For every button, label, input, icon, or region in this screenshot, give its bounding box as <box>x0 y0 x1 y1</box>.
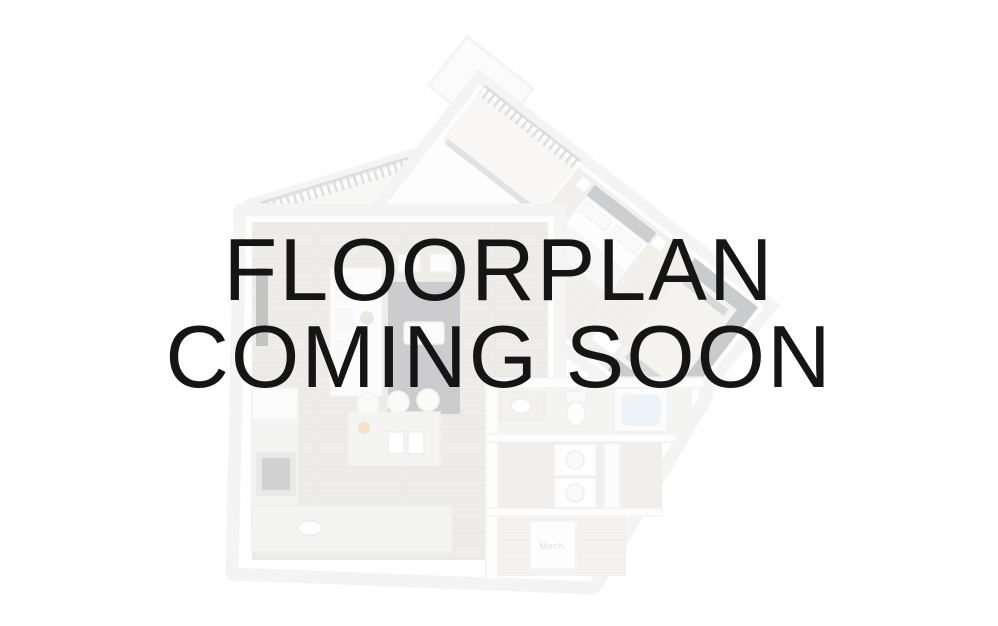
armchair <box>398 254 420 272</box>
coffee-table <box>404 322 444 344</box>
toilet <box>567 402 585 426</box>
barstool <box>417 389 439 411</box>
sofa-cushion <box>334 340 354 366</box>
floorplan-placeholder-card: Mech. FLOORPLAN COMING SOON <box>0 0 998 626</box>
armchair <box>430 254 452 272</box>
bathroom-sink <box>511 399 531 413</box>
flower-vase <box>358 422 370 434</box>
kitchen-counter-bottom <box>252 506 452 552</box>
barstool <box>357 393 379 415</box>
laundry-door-panel <box>604 444 620 508</box>
mech-room-label: Mech. <box>539 541 566 551</box>
sofa-cushion <box>334 308 354 334</box>
island-sink-bowl <box>388 432 404 454</box>
refrigerator <box>252 388 298 420</box>
sofa-cushion <box>334 276 354 302</box>
interior-wall-bath-top <box>486 378 704 388</box>
bathtub-water <box>621 394 661 426</box>
island-sink-bowl <box>408 432 424 454</box>
stove-top <box>262 458 290 490</box>
faded-plan-group: Mech. <box>232 37 787 588</box>
interior-wall-vertical <box>486 383 498 580</box>
interior-wall-bath-laundry <box>486 434 676 442</box>
tv <box>256 268 268 346</box>
washer-door <box>566 451 584 469</box>
kitchen-sink <box>298 521 322 535</box>
toilet-tank <box>566 392 586 402</box>
floorplan-illustration: Mech. <box>0 0 998 626</box>
interior-wall-laundry-mech <box>486 508 662 516</box>
dryer-door <box>566 484 584 502</box>
living-plant <box>360 311 374 325</box>
barstool <box>387 391 409 413</box>
